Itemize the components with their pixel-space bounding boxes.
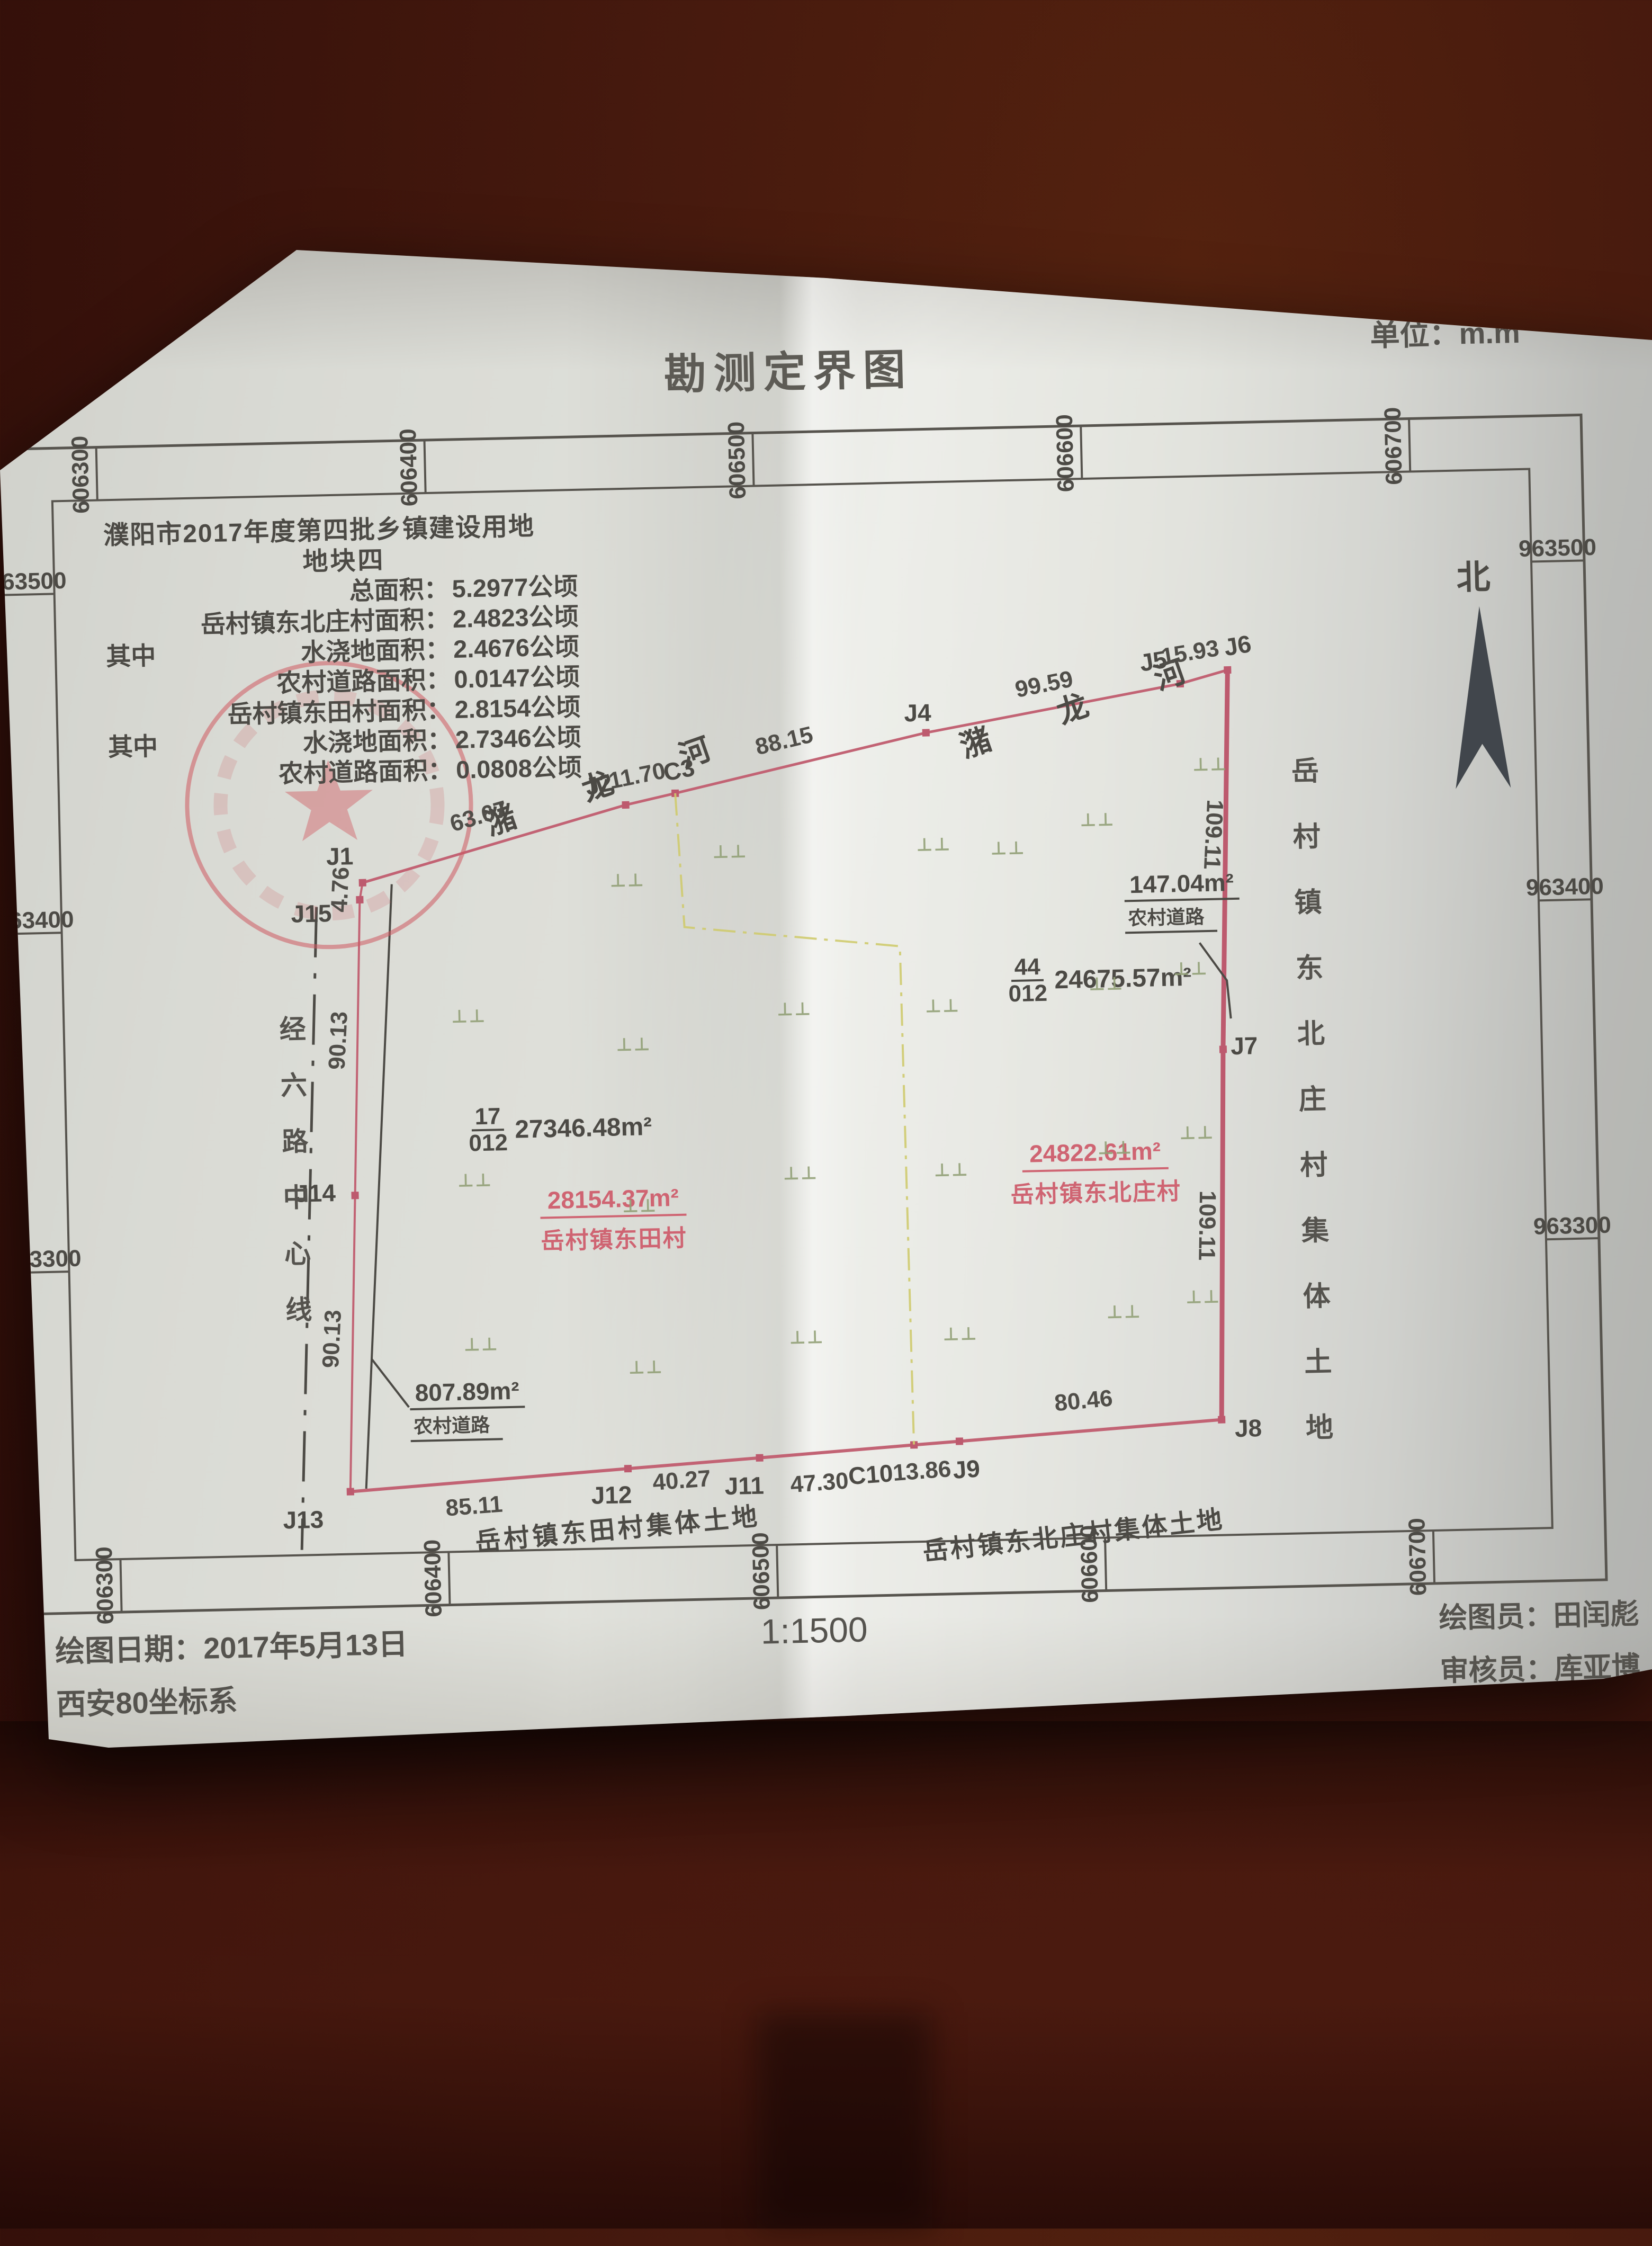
grid-x-label-top: 606600 (1052, 414, 1080, 493)
irrigated-land-icon: ⊥⊥ (933, 1159, 969, 1181)
grid-y-label-right: 963300 (1533, 1212, 1611, 1240)
road-label-147: 147.04m² 农村道路 (1124, 868, 1240, 934)
dim-label: 40.27 (652, 1465, 712, 1496)
footer-drafter: 绘图员：田闰彪 (1439, 1590, 1640, 1636)
unit-text: 单位：m.m (1370, 316, 1520, 352)
irrigated-land-icon: ⊥⊥ (777, 998, 812, 1020)
grid-x-label-top: 606500 (723, 421, 751, 499)
fraction-bottom: 012 (469, 1131, 508, 1156)
unit-superscript: 2 (1533, 309, 1546, 332)
qizhong-label: 其中 (107, 726, 158, 763)
footer-scale: 1:1500 (760, 1609, 868, 1651)
irrigated-land-icon: ⊥⊥ (451, 1006, 487, 1027)
irrigated-land-icon: ⊥⊥ (712, 841, 748, 863)
grid-y-label-right: 963400 (1525, 873, 1604, 901)
qizhong-label: 其中 (105, 635, 156, 673)
grid-x-label-bottom: 606700 (1404, 1518, 1432, 1596)
grid-x-label-top: 606400 (395, 428, 423, 507)
red-parcel-dongbeizhuang: 24822.61m² 岳村镇东北庄村 (1010, 1136, 1182, 1210)
dim-label: 90.13 (318, 1309, 347, 1368)
irrigated-land-icon: ⊥⊥ (1097, 1137, 1133, 1159)
point-label-J8: J8 (1234, 1413, 1262, 1443)
road-area: 807.89m² (409, 1376, 525, 1410)
road-name: 农村道路 (410, 1408, 502, 1442)
irrigated-land-icon: ⊥⊥ (1173, 958, 1208, 980)
irrigated-land-icon: ⊥⊥ (616, 1034, 651, 1055)
dim-label: 47.30 (789, 1467, 850, 1498)
dim-label: 85.11 (445, 1491, 504, 1522)
red-parcel-name: 岳村镇东北庄村 (1010, 1169, 1181, 1210)
road-edge-line (353, 884, 405, 1489)
irrigated-land-icon: ⊥⊥ (916, 834, 951, 856)
irrigated-land-icon: ⊥⊥ (1186, 1286, 1221, 1308)
dim-label: 109.11 (1193, 1191, 1220, 1261)
point-label-J4: J4 (904, 698, 931, 727)
paper-sheet: 勘测定界图 单位：m.m2 北 606300 606400 606500 606… (0, 0, 1652, 2229)
fraction-top: 17 (471, 1104, 504, 1132)
irrigated-land-icon: ⊥⊥ (990, 837, 1026, 859)
irrigated-land-icon: ⊥⊥ (457, 1170, 493, 1192)
parcel-fraction: 44012 (1008, 955, 1048, 1007)
leader-road-south (372, 1358, 409, 1408)
north-label: 北 (1456, 550, 1491, 599)
parcel-label-17-012: 17012 27346.48m² (468, 1101, 652, 1156)
north-arrow-icon (1452, 606, 1511, 789)
irrigated-land-icon: ⊥⊥ (463, 1334, 499, 1355)
footer-reviewer: 审核员：库亚博 (1440, 1643, 1641, 1689)
irrigated-land-icon: ⊥⊥ (1106, 1301, 1142, 1323)
dim-label: 109.11 (1198, 799, 1228, 870)
road-area: 147.04m² (1124, 868, 1240, 902)
fraction-top: 44 (1011, 955, 1044, 982)
point-label-J7: J7 (1231, 1031, 1258, 1060)
grid-y-label-left: 963400 (0, 907, 74, 935)
red-parcel-area: 24822.61m² (1022, 1137, 1169, 1173)
point-label-C10: C10 (847, 1458, 894, 1490)
village-boundary-line (675, 789, 914, 1450)
irrigated-land-icon: ⊥⊥ (622, 1195, 658, 1217)
grid-x-label-top: 606300 (67, 435, 95, 514)
unit-label: 单位：m.m2 (1370, 308, 1546, 355)
irrigated-land-icon: ⊥⊥ (942, 1323, 978, 1345)
point-label-J13: J13 (283, 1505, 324, 1535)
irrigated-land-icon: ⊥⊥ (925, 995, 960, 1017)
dim-label: 80.46 (1053, 1385, 1114, 1417)
grid-y-label-left: 963300 (3, 1246, 82, 1274)
footer-coord-system: 西安80坐标系 (56, 1677, 238, 1723)
irrigated-land-icon: ⊥⊥ (789, 1327, 824, 1348)
red-parcel-name: 岳村镇东田村 (541, 1216, 687, 1256)
red-parcel-dongtian: 28154.37m² 岳村镇东田村 (540, 1183, 687, 1256)
red-parcel-area: 28154.37m² (540, 1183, 686, 1219)
irrigated-land-icon: ⊥⊥ (783, 1162, 818, 1184)
grid-x-label-top: 606700 (1380, 407, 1408, 485)
irrigated-land-icon: ⊥⊥ (1089, 973, 1124, 995)
map-sheet: 勘测定界图 单位：m.m2 北 606300 606400 606500 606… (0, 0, 1652, 2246)
page-title: 勘测定界图 (663, 335, 913, 402)
dim-label: 90.13 (324, 1011, 353, 1070)
dim-label: 4.76 (326, 866, 355, 913)
point-label-J6: J6 (1222, 629, 1253, 662)
irrigated-land-icon: ⊥⊥ (1080, 809, 1115, 831)
grid-y-label-left: 963500 (0, 568, 67, 596)
dim-label: 13.86 (892, 1456, 952, 1487)
road-centerline-label: 经六路中心线 (271, 1015, 317, 1352)
grid-y-label-right: 963500 (1519, 534, 1597, 562)
parcel-fraction: 17012 (468, 1104, 508, 1156)
point-label-J15: J15 (291, 899, 332, 928)
grid-x-label-bottom: 606500 (748, 1532, 776, 1610)
footer-date: 绘图日期：2017年5月13日 (55, 1620, 408, 1671)
irrigated-land-icon: ⊥⊥ (1192, 754, 1228, 775)
road-name: 农村道路 (1125, 900, 1217, 934)
irrigated-land-icon: ⊥⊥ (1179, 1122, 1215, 1144)
parcel-area: 27346.48m² (515, 1112, 652, 1144)
grid-x-label-bottom: 606300 (91, 1546, 119, 1625)
irrigated-land-icon: ⊥⊥ (628, 1357, 663, 1379)
grid-x-label-bottom: 606400 (419, 1539, 447, 1617)
point-label-J9: J9 (952, 1454, 981, 1484)
paper-wrap: 勘测定界图 单位：m.m2 北 606300 606400 606500 606… (0, 0, 1652, 2229)
road-label-807: 807.89m² 农村道路 (409, 1376, 525, 1442)
photo-of-survey-map: { "doc": { "title": "勘测定界图", "unit_label… (0, 0, 1652, 2229)
boundary-vertices (329, 666, 1249, 1496)
point-label-J12: J12 (591, 1480, 632, 1510)
irrigated-land-icon: ⊥⊥ (609, 870, 645, 891)
fraction-bottom: 012 (1008, 981, 1047, 1007)
info-label: 农村道路面积： (108, 749, 453, 793)
